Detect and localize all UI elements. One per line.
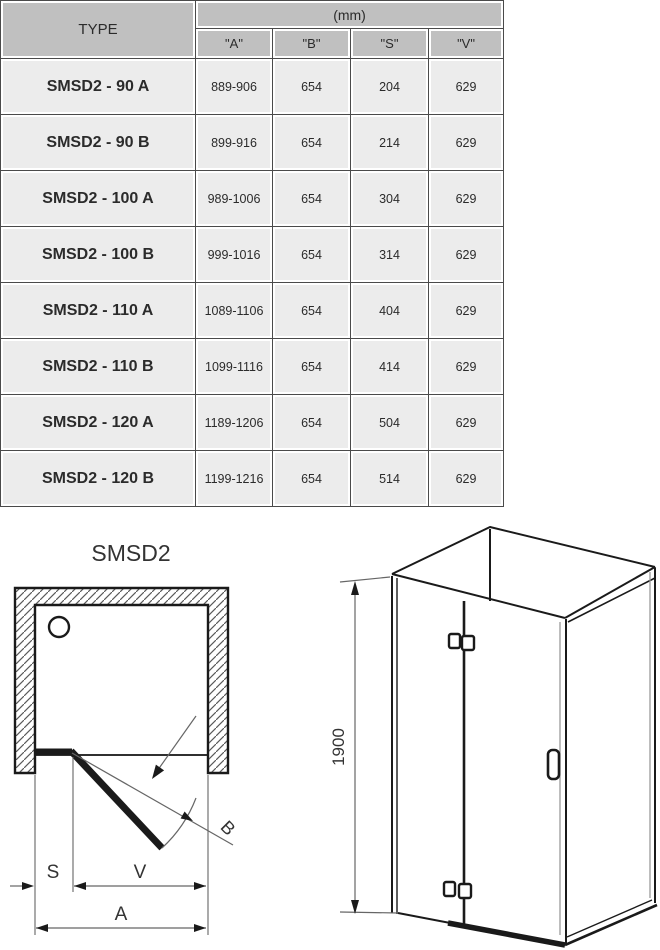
- column-header-0: "A": [196, 29, 273, 59]
- s-cell: 504: [351, 395, 429, 451]
- dim-a-arrow-right: [194, 924, 206, 932]
- s-cell: 514: [351, 451, 429, 507]
- door-handle: [548, 750, 559, 779]
- hinge-top: [449, 634, 474, 650]
- type-cell: SMSD2 - 90 A: [1, 59, 196, 115]
- a-cell: 1189-1206: [196, 395, 273, 451]
- table-row: SMSD2 - 120 B1199-1216654514629: [1, 451, 504, 507]
- s-cell: 414: [351, 339, 429, 395]
- type-cell: SMSD2 - 100 B: [1, 227, 196, 283]
- column-header-3: "V": [429, 29, 504, 59]
- arc-arrowhead: [181, 812, 193, 822]
- dim-b-label: B: [217, 817, 240, 840]
- v-cell: 629: [429, 451, 504, 507]
- s-cell: 404: [351, 283, 429, 339]
- a-cell: 1089-1106: [196, 283, 273, 339]
- v-cell: 629: [429, 339, 504, 395]
- s-cell: 314: [351, 227, 429, 283]
- table-row: SMSD2 - 110 A1089-1106654404629: [1, 283, 504, 339]
- type-header: TYPE: [1, 1, 196, 59]
- v-cell: 629: [429, 283, 504, 339]
- height-label: 1900: [330, 728, 348, 766]
- table-row: SMSD2 - 110 B1099-1116654414629: [1, 339, 504, 395]
- table-row: SMSD2 - 90 B899-916654214629: [1, 115, 504, 171]
- a-cell: 989-1006: [196, 171, 273, 227]
- a-cell: 899-916: [196, 115, 273, 171]
- isometric-drawing: 1900: [330, 515, 660, 950]
- wall-section: [15, 588, 228, 773]
- plan-view-drawing: SMSD2 S V A B: [0, 520, 270, 950]
- b-cell: 654: [273, 451, 351, 507]
- spec-table: TYPE(mm)"A""B""S""V"SMSD2 - 90 A889-9066…: [0, 0, 504, 507]
- height-arrow-up: [351, 581, 359, 595]
- a-cell: 999-1016: [196, 227, 273, 283]
- dim-a-label: A: [115, 904, 128, 925]
- a-cell: 889-906: [196, 59, 273, 115]
- b-cell: 654: [273, 339, 351, 395]
- s-cell: 204: [351, 59, 429, 115]
- b-cell: 654: [273, 115, 351, 171]
- dim-s-label: S: [47, 862, 60, 883]
- table-body: SMSD2 - 90 A889-906654204629SMSD2 - 90 B…: [1, 59, 504, 507]
- type-cell: SMSD2 - 110 B: [1, 339, 196, 395]
- column-header-2: "S": [351, 29, 429, 59]
- b-cell: 654: [273, 283, 351, 339]
- drain-circle: [49, 617, 69, 637]
- type-cell: SMSD2 - 100 A: [1, 171, 196, 227]
- open-direction-arrowhead: [152, 765, 164, 779]
- v-cell: 629: [429, 115, 504, 171]
- b-cell: 654: [273, 59, 351, 115]
- a-cell: 1099-1116: [196, 339, 273, 395]
- dim-v-arrow-left: [74, 882, 86, 890]
- door-panel: [71, 751, 162, 848]
- dim-v-arrow-right: [194, 882, 206, 890]
- table-row: SMSD2 - 120 A1189-1206654504629: [1, 395, 504, 451]
- dim-a-arrow-left: [36, 924, 48, 932]
- dim-v-label: V: [134, 862, 147, 883]
- table-row: SMSD2 - 100 B999-1016654314629: [1, 227, 504, 283]
- open-direction-line: [155, 716, 196, 774]
- height-dimension: [340, 577, 398, 913]
- dim-s-arrow: [22, 882, 34, 890]
- s-cell: 304: [351, 171, 429, 227]
- v-cell: 629: [429, 59, 504, 115]
- b-cell: 654: [273, 171, 351, 227]
- b-cell: 654: [273, 395, 351, 451]
- header-row-units: TYPE(mm): [1, 1, 504, 29]
- v-cell: 629: [429, 171, 504, 227]
- s-cell: 214: [351, 115, 429, 171]
- v-cell: 629: [429, 227, 504, 283]
- door-swing-arc: [162, 798, 196, 848]
- type-cell: SMSD2 - 120 A: [1, 395, 196, 451]
- table-row: SMSD2 - 90 A889-906654204629: [1, 59, 504, 115]
- plan-title: SMSD2: [91, 540, 170, 566]
- a-cell: 1199-1216: [196, 451, 273, 507]
- b-cell: 654: [273, 227, 351, 283]
- v-cell: 629: [429, 395, 504, 451]
- table-row: SMSD2 - 100 A989-1006654304629: [1, 171, 504, 227]
- column-header-1: "B": [273, 29, 351, 59]
- datasheet-page: TYPE(mm)"A""B""S""V"SMSD2 - 90 A889-9066…: [0, 0, 660, 950]
- table-header: TYPE(mm)"A""B""S""V": [1, 1, 504, 59]
- enclosure-frame: [392, 527, 657, 945]
- hinge-bottom: [444, 882, 471, 898]
- type-cell: SMSD2 - 120 B: [1, 451, 196, 507]
- type-cell: SMSD2 - 90 B: [1, 115, 196, 171]
- type-cell: SMSD2 - 110 A: [1, 283, 196, 339]
- unit-header: (mm): [196, 1, 504, 29]
